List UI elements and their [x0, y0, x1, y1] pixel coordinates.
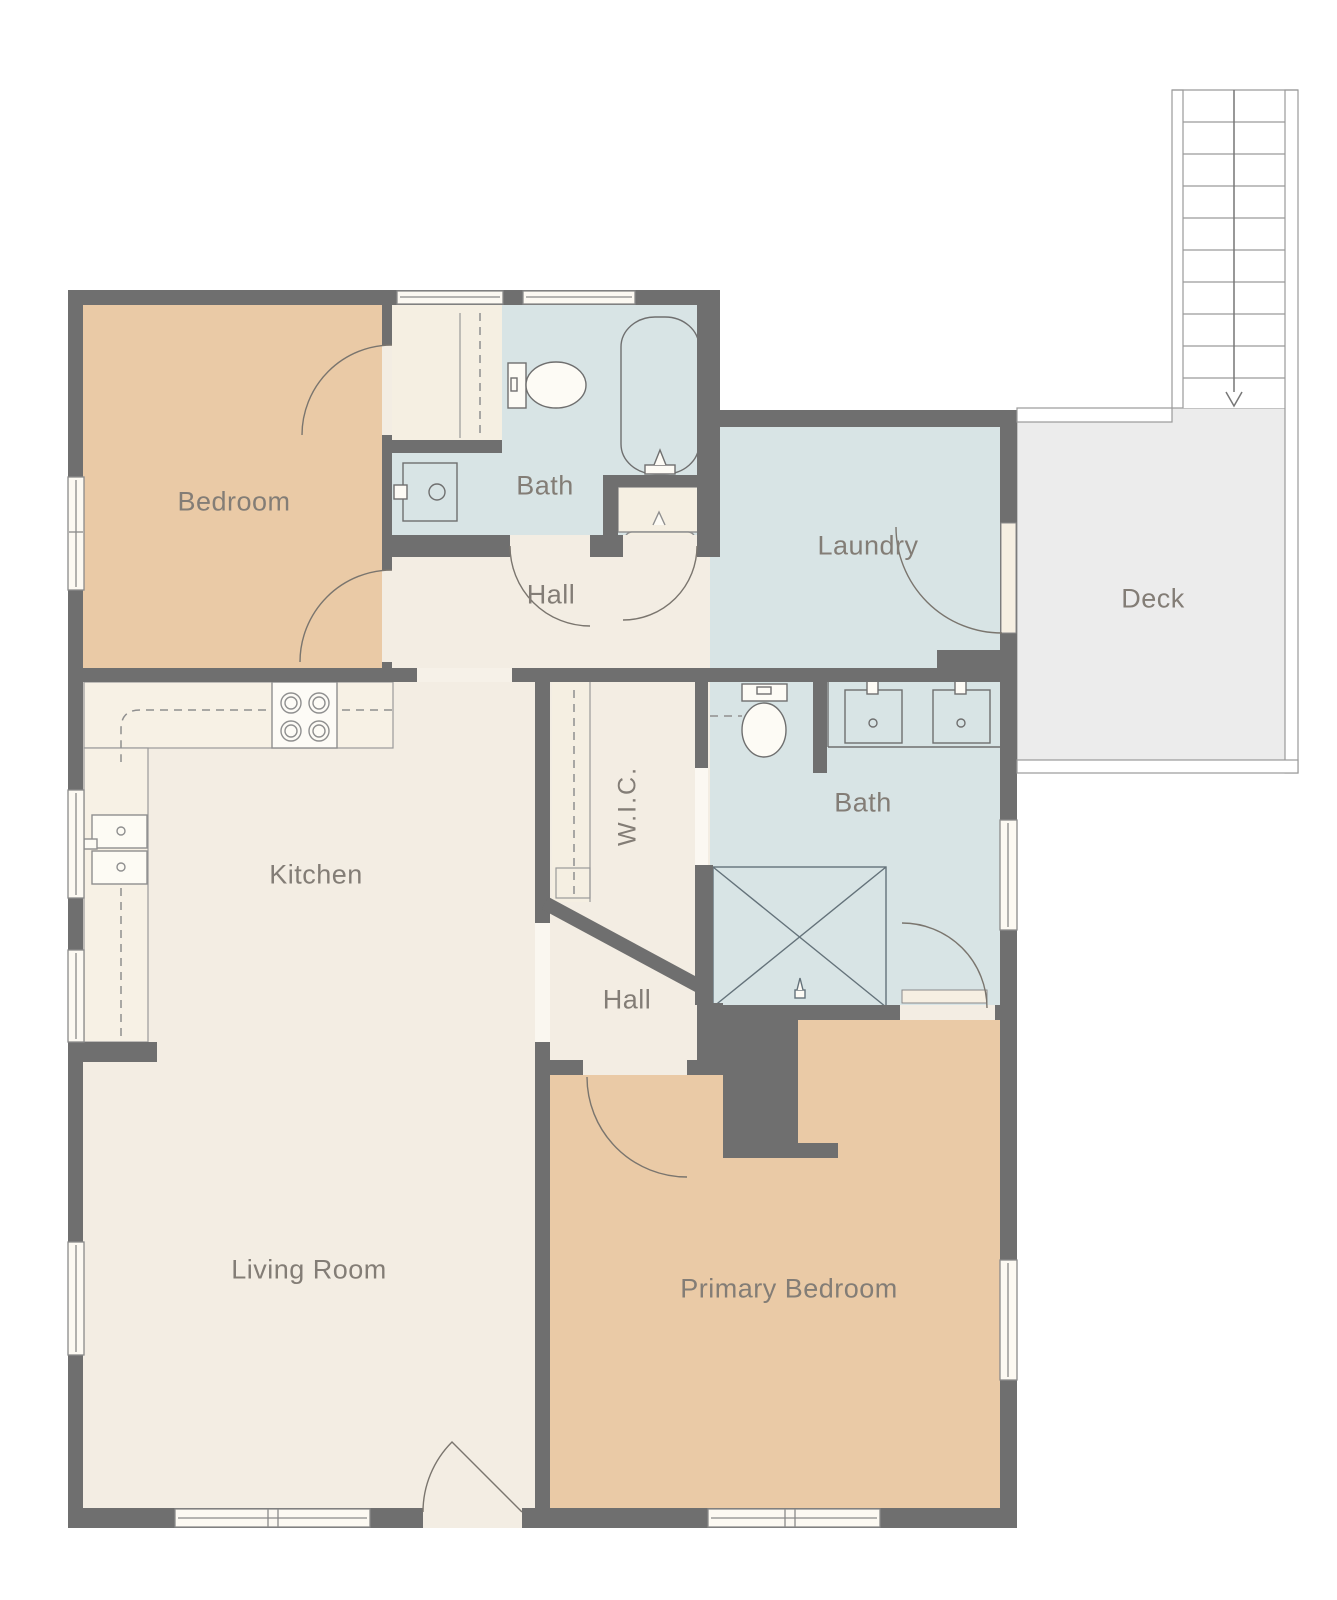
wall-living-primary — [535, 1042, 550, 1508]
closet-door-opening — [382, 345, 392, 435]
label-hall-upper: Hall — [527, 580, 576, 611]
wall-bathL-left-2 — [695, 865, 713, 1005]
stove-icon — [272, 682, 337, 748]
wall-tub-stub — [603, 475, 697, 487]
label-primary-bedroom: Primary Bedroom — [680, 1274, 898, 1305]
wall-bath-bottom-2 — [590, 535, 623, 557]
label-kitchen: Kitchen — [269, 860, 363, 891]
wall-bedroom-right-2 — [382, 435, 392, 570]
toilet-icon — [508, 362, 586, 408]
wall-mid-horizontal-left — [83, 668, 417, 682]
laundry-deck-door-leaf — [1001, 523, 1016, 633]
vanity-nook-opening — [623, 535, 697, 557]
stairs-floor — [1172, 90, 1298, 408]
wall-bathL-bottom-1 — [713, 1005, 900, 1020]
floor-plan-drawing — [0, 0, 1337, 1600]
label-bedroom: Bedroom — [177, 487, 290, 518]
kitchen-counter-top — [84, 682, 393, 748]
label-hall-lower: Hall — [603, 985, 652, 1016]
bath-upper-door-opening — [510, 535, 590, 557]
label-laundry: Laundry — [817, 531, 918, 562]
toilet-lower-icon — [742, 684, 787, 757]
label-bath-lower: Bath — [834, 788, 892, 819]
front-door-opening — [423, 1508, 522, 1528]
wall-laundry-top — [713, 410, 1017, 427]
wall-primary-block — [723, 1018, 798, 1158]
wall-toilet-vanity-stub — [813, 668, 827, 773]
kitchen-counter-left — [84, 748, 148, 1042]
bath-lower-door-leaf — [902, 990, 987, 1003]
wall-bath-bottom-1 — [392, 535, 510, 557]
bedroom-closet-floor — [392, 305, 502, 445]
wall-closet-bottom — [392, 440, 502, 453]
kitchen-hall-lower-opening — [535, 923, 550, 1042]
wall-hall-primary-2 — [687, 1060, 723, 1075]
primary-bedroom-door-opening — [583, 1060, 687, 1075]
wall-kitchen-wic — [535, 682, 550, 923]
label-wic: W.I.C. — [614, 766, 643, 846]
wall-mid-horizontal-right — [512, 668, 1003, 682]
wall-bathL-left-1 — [695, 682, 708, 768]
kitchen-hall-opening — [417, 668, 512, 682]
wall-bathL-bottom-2 — [995, 1005, 1003, 1020]
wall-bath-laundry — [697, 290, 720, 557]
wic-bath-opening — [695, 768, 708, 865]
bedroom-door-opening — [382, 570, 392, 662]
label-deck: Deck — [1121, 584, 1185, 615]
wall-hall-primary-1 — [550, 1060, 583, 1075]
floor-plan: Bedroom Bath Hall Laundry Deck Kitchen W… — [0, 0, 1337, 1600]
wall-bedroom-right-1 — [382, 305, 392, 345]
wic-closet-band — [552, 682, 590, 902]
label-living-room: Living Room — [231, 1255, 387, 1286]
wall-primary-block-foot — [798, 1143, 838, 1158]
label-bath-upper: Bath — [516, 471, 574, 502]
wall-kitchen-stub — [80, 1042, 157, 1062]
wall-laundry-step — [937, 650, 1003, 682]
bath-lower-door-opening — [900, 1005, 995, 1020]
kitchen-living-floor — [83, 682, 537, 1508]
